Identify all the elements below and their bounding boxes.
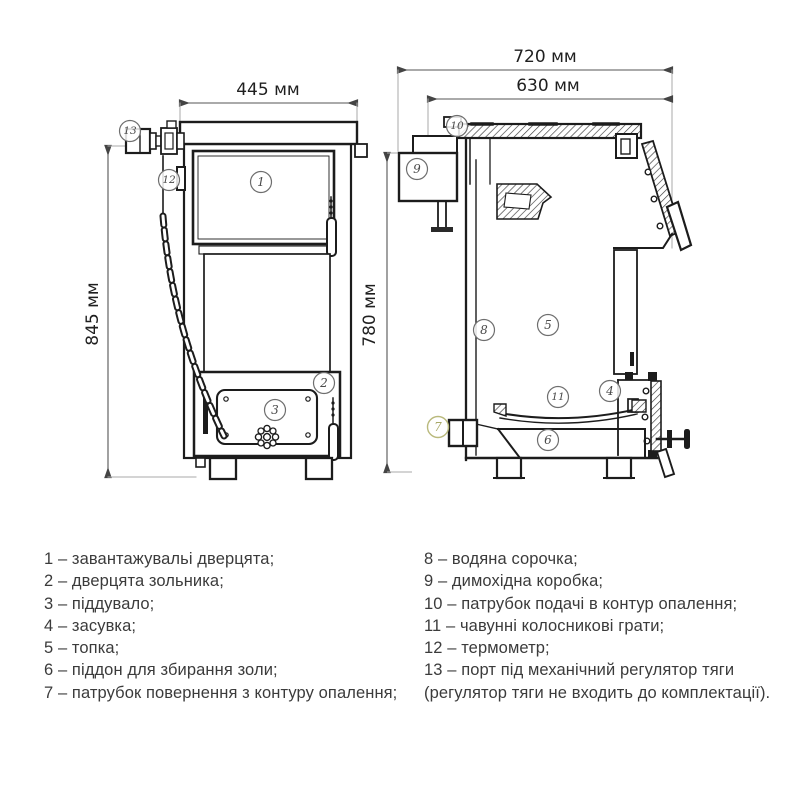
legend-left-column: 1 – завантажувальі дверцята; 2 – дверцят… (44, 548, 397, 704)
callout-13: 13 (120, 121, 141, 142)
ash-pan (476, 424, 645, 458)
callout-2: 2 (314, 373, 335, 394)
middle-panel (204, 254, 330, 372)
air-damper-knob (255, 425, 278, 448)
chimney-support (431, 201, 453, 232)
dim-side-inner-width-label: 630 мм (516, 76, 580, 96)
callout-4: 4 (600, 381, 621, 402)
top-cap (180, 122, 357, 144)
legend-item-9: 9 – димохідна коробка; (424, 570, 770, 592)
boiler-spec-diagram: 445 мм 845 мм (0, 0, 800, 800)
legend-item-13-note: (регулятор тяги не входить до комплектац… (424, 682, 770, 704)
technical-drawing: 445 мм 845 мм (0, 0, 800, 540)
callout-9: 9 (407, 159, 428, 180)
callout-6: 6 (538, 430, 559, 451)
callout-10: 10 (447, 116, 468, 137)
loading-door (193, 151, 336, 256)
callout-12: 12 (159, 170, 180, 191)
dim-side-outer-width-label: 720 мм (513, 47, 577, 67)
callout-3: 3 (265, 400, 286, 421)
chimney-box-top (413, 136, 457, 153)
front-leg-left (210, 458, 236, 479)
svg-text:5: 5 (544, 318, 552, 332)
callout-8: 8 (474, 320, 495, 341)
legend-item-10: 10 – патрубок подачі в контур опалення; (424, 593, 770, 615)
callout-11: 11 (548, 387, 569, 408)
svg-text:10: 10 (450, 120, 464, 132)
legend-item-1: 1 – завантажувальі дверцята; (44, 548, 397, 570)
front-door-side (616, 134, 691, 250)
return-pipe (449, 420, 477, 446)
legend-item-7: 7 – патрубок повернення з контуру опален… (44, 682, 397, 704)
top-plate (459, 124, 641, 138)
front-wall-lower (614, 234, 672, 374)
svg-text:2: 2 (319, 376, 328, 390)
legend-item-11: 11 – чавунні колосникові грати; (424, 615, 770, 637)
water-jacket-wall (466, 138, 476, 460)
svg-text:1: 1 (257, 175, 265, 189)
dim-front-width-label: 445 мм (236, 80, 300, 100)
loading-door-handle (327, 218, 336, 256)
ash-door-handle (329, 424, 338, 460)
callout-5: 5 (538, 315, 559, 336)
legend-item-8: 8 – водяна сорочка; (424, 548, 770, 570)
callout-1: 1 (251, 172, 272, 193)
damper-screw-handle (657, 429, 690, 449)
dim-front-height-label: 845 мм (83, 282, 103, 346)
svg-text:6: 6 (544, 433, 552, 447)
side-view: 720 мм 630 мм (398, 47, 691, 478)
lower-lever (657, 449, 674, 477)
side-leg-right (607, 458, 631, 478)
chimney-box (399, 153, 457, 201)
legend-right-column: 8 – водяна сорочка; 9 – димохідна коробк… (424, 548, 770, 704)
svg-text:9: 9 (413, 162, 421, 176)
legend-item-3: 3 – піддувало; (44, 593, 397, 615)
svg-text:3: 3 (271, 403, 279, 417)
svg-text:7: 7 (434, 420, 442, 434)
legend-item-5: 5 – топка; (44, 637, 397, 659)
svg-text:4: 4 (605, 384, 614, 398)
legend-item-6: 6 – піддон для збирання золи; (44, 659, 397, 681)
legend-item-4: 4 – засувка; (44, 615, 397, 637)
svg-text:12: 12 (162, 174, 176, 186)
side-leg-left (497, 458, 521, 478)
svg-text:13: 13 (123, 125, 137, 137)
dim-side-height-label: 780 мм (360, 283, 380, 347)
right-lug (355, 144, 367, 157)
front-leg-right (306, 458, 332, 479)
legend-item-13: 13 – порт під механічний регулятор тяги (424, 659, 770, 681)
grate (494, 400, 646, 423)
smoke-baffle (497, 184, 551, 219)
legend-item-12: 12 – термометр; (424, 637, 770, 659)
legend-item-2: 2 – дверцята зольника; (44, 570, 397, 592)
callout-7: 7 (428, 417, 449, 438)
svg-text:11: 11 (551, 391, 564, 403)
svg-text:8: 8 (480, 323, 488, 337)
